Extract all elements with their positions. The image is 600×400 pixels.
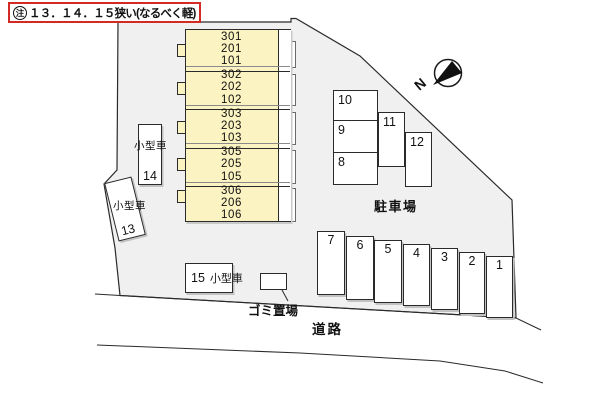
building-balcony-strip [278, 30, 291, 221]
parking-space-2: 2 [459, 252, 485, 314]
building-section: 303 203 103 [185, 107, 278, 145]
note-circle-mark: 注 [13, 6, 27, 20]
space-number: 11 [383, 115, 396, 129]
small-car-label-13: 小型車 [110, 198, 149, 213]
garbage-area-label: ゴミ置場 [248, 300, 298, 319]
road-edge-line-lower [97, 345, 543, 383]
space-number: 14 [143, 169, 157, 183]
space-number: 13 [120, 221, 137, 238]
space-number: 6 [347, 238, 373, 252]
parking-space-7: 7 [317, 231, 345, 295]
building-section: 306 206 106 [185, 184, 278, 222]
room-number: 106 [185, 209, 278, 221]
parking-space-5: 5 [374, 240, 402, 303]
space-number: 3 [432, 250, 457, 264]
room-number: 302 [185, 69, 278, 81]
parking-space-4: 4 [403, 244, 430, 306]
space-number: 1 [487, 258, 512, 272]
note-box: 注 １３．１４．１５狭い(なるべく軽) [8, 2, 201, 23]
space-number: 15 [191, 271, 205, 285]
room-number: 206 [185, 197, 278, 209]
parking-space-15: 15 小型車 [185, 263, 233, 293]
room-number: 201 [185, 43, 278, 55]
site-plan: 301 201 101 302 202 102 303 203 103 305 … [0, 0, 600, 400]
parking-space-11: 11 [378, 112, 405, 167]
room-number: 301 [185, 31, 278, 43]
room-number: 305 [185, 146, 278, 158]
parking-space-10: 10 [333, 90, 378, 121]
building-section: 305 205 105 [185, 145, 278, 183]
parking-space-14: 14 [138, 124, 162, 185]
garbage-area-box [260, 273, 287, 290]
room-number: 203 [185, 120, 278, 132]
parking-lot-label: 駐車場 [374, 196, 418, 215]
room-number: 202 [185, 81, 278, 93]
building-section: 302 202 102 [185, 68, 278, 106]
building-section: 301 201 101 [185, 30, 278, 68]
site-drawing [0, 0, 600, 400]
room-number: 306 [185, 185, 278, 197]
small-car-label-15: 小型車 [210, 270, 243, 286]
room-number: 105 [185, 171, 278, 183]
space-number: 12 [410, 135, 424, 149]
room-number: 101 [185, 55, 278, 67]
space-number: 10 [338, 93, 352, 107]
space-number: 4 [404, 246, 429, 260]
small-car-label-14: 小型車 [127, 138, 174, 153]
room-number: 102 [185, 94, 278, 106]
space-number: 5 [375, 242, 401, 256]
space-number: 2 [460, 254, 484, 268]
room-number: 103 [185, 132, 278, 144]
space-number: 7 [318, 233, 344, 247]
compass-north-arrow [433, 60, 462, 87]
note-text: １３．１４．１５狭い(なるべく軽) [29, 5, 196, 21]
parking-space-12: 12 [405, 132, 432, 187]
parking-space-6: 6 [346, 236, 374, 300]
parking-space-3: 3 [431, 248, 458, 310]
road-label: 道路 [312, 318, 343, 338]
space-number: 9 [338, 123, 345, 137]
parking-space-9: 9 [333, 120, 378, 153]
parking-space-8: 8 [333, 152, 378, 185]
room-number: 205 [185, 158, 278, 170]
space-number: 8 [338, 155, 345, 169]
parking-space-1: 1 [486, 256, 513, 318]
room-number: 303 [185, 108, 278, 120]
